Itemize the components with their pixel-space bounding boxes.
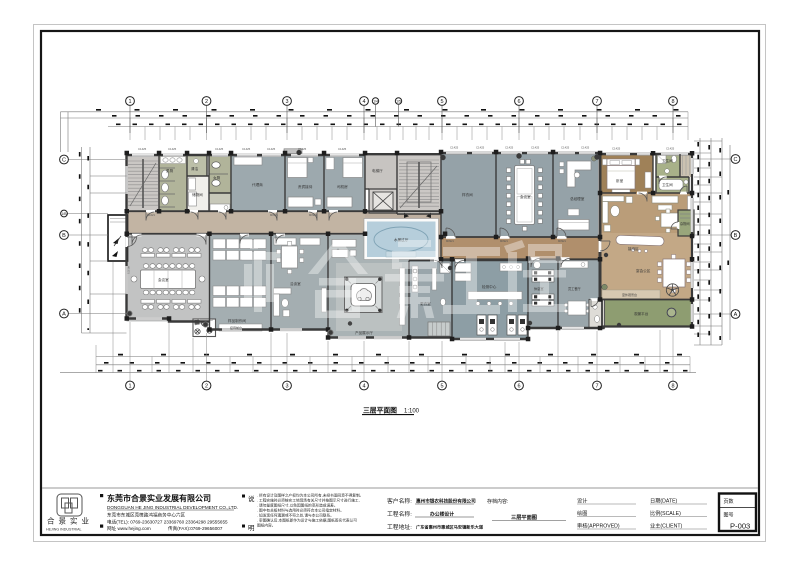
svg-text:客户名称:: 客户名称: — [387, 497, 412, 505]
svg-text:C1425: C1425 — [338, 147, 347, 151]
svg-text:B: B — [62, 233, 66, 239]
svg-text:M0921: M0921 — [309, 213, 317, 217]
svg-text:C1425: C1425 — [450, 146, 459, 150]
svg-text:样衣间: 样衣间 — [462, 192, 473, 197]
svg-text:三层平面图: 三层平面图 — [511, 513, 537, 521]
svg-text:东莞市东城区莞樟路鸿福商务中心六区: 东莞市东城区莞樟路鸿福商务中心六区 — [107, 512, 186, 519]
svg-text:3: 3 — [285, 384, 288, 390]
svg-text:存档内容:: 存档内容: — [487, 498, 508, 505]
svg-text:合景实业: 合景实业 — [47, 516, 93, 526]
svg-text:1/4: 1/4 — [373, 100, 378, 104]
svg-text:1/5: 1/5 — [396, 100, 401, 104]
svg-text:C1425: C1425 — [267, 147, 276, 151]
svg-text:办公楼设计: 办公楼设计 — [430, 511, 454, 518]
svg-text:工程地址:: 工程地址: — [387, 523, 412, 531]
svg-text:7: 7 — [595, 99, 598, 105]
svg-text:1: 1 — [128, 384, 131, 390]
svg-text:设计: 设计 — [577, 497, 587, 505]
svg-text:接待前台: 接待前台 — [230, 325, 242, 330]
svg-text:. 图中有关板材料与选用时必须符合本公司指定材料。: . 图中有关板材料与选用时必须符合本公司指定材料。 — [257, 508, 344, 513]
svg-text:A: A — [62, 312, 66, 318]
svg-text:司机房: 司机房 — [337, 184, 348, 189]
svg-text:业主(CLIENT): 业主(CLIENT) — [650, 522, 683, 530]
svg-text:员工餐厅: 员工餐厅 — [568, 286, 582, 291]
svg-text:明: 明 — [248, 524, 255, 532]
svg-text:4: 4 — [362, 99, 365, 105]
svg-text:5: 5 — [440, 99, 443, 105]
svg-text:产品展示厅: 产品展示厅 — [355, 330, 373, 335]
svg-text:B: B — [734, 233, 738, 239]
svg-text:C: C — [734, 157, 738, 163]
svg-text:卫生间: 卫生间 — [662, 182, 673, 187]
svg-text:M0921: M0921 — [558, 239, 566, 243]
svg-text:6: 6 — [517, 99, 520, 105]
svg-text:卫生间: 卫生间 — [662, 158, 673, 163]
svg-text:绘图: 绘图 — [577, 509, 587, 517]
svg-text:8: 8 — [671, 99, 674, 105]
svg-text:1:100: 1:100 — [404, 409, 420, 415]
svg-text:会议室: 会议室 — [520, 194, 531, 199]
svg-text:储物间: 储物间 — [192, 192, 203, 197]
svg-text:3: 3 — [285, 99, 288, 105]
svg-text:C1425: C1425 — [242, 147, 251, 151]
svg-text:网址 www.hejing.com: 网址 www.hejing.com — [107, 525, 151, 532]
svg-text:杂物间: 杂物间 — [680, 221, 690, 226]
svg-text:A: A — [734, 312, 738, 318]
svg-text:图号: 图号 — [724, 513, 734, 519]
svg-text:C1425: C1425 — [505, 146, 514, 150]
svg-text:清洁: 清洁 — [191, 166, 199, 171]
svg-text:三层平面图: 三层平面图 — [363, 406, 397, 415]
svg-text:电梯厅: 电梯厅 — [372, 168, 383, 173]
svg-text:图纸内容。: 图纸内容。 — [257, 523, 275, 528]
svg-text:洽谈室: 洽谈室 — [290, 281, 301, 286]
svg-text:页数: 页数 — [724, 498, 734, 505]
svg-text:HEJING INDUSTRIAL: HEJING INDUSTRIAL — [46, 528, 82, 532]
svg-text:宴会公区: 宴会公区 — [636, 268, 651, 273]
svg-text:M0921: M0921 — [270, 213, 278, 217]
svg-text:2: 2 — [205, 99, 208, 105]
svg-text:P-003: P-003 — [730, 522, 750, 531]
svg-text:DONGGUAN HE JING INDUSTRIAL DE: DONGGUAN HE JING INDUSTRIAL DEVELOPMENT … — [107, 505, 238, 510]
svg-text:C1425: C1425 — [666, 147, 675, 151]
svg-text:代理商: 代理商 — [252, 182, 263, 187]
svg-text:C1425: C1425 — [476, 146, 485, 150]
svg-text:C1425: C1425 — [581, 146, 590, 150]
svg-text:C1425: C1425 — [138, 147, 147, 151]
svg-text:审核(APPROVED): 审核(APPROVED) — [577, 522, 620, 530]
svg-text:. 审图确认后,本图纸即作为设计与施工依据,图纸签名代表认可: . 审图确认后,本图纸即作为设计与施工依据,图纸签名代表认可 — [257, 518, 357, 523]
svg-text:接待区: 接待区 — [628, 246, 639, 251]
svg-text:1: 1 — [128, 99, 131, 105]
svg-text:电话(TEL): 0769-23630727 2336976: 电话(TEL): 0769-23630727 23369760 23364298… — [107, 519, 228, 526]
svg-text:惠州市银农科技股份有限公司: 惠州市银农科技股份有限公司 — [416, 498, 476, 505]
svg-text:室外观景台: 室外观景台 — [622, 292, 637, 297]
svg-text:传真(FAX):0769-29656007: 传真(FAX):0769-29656007 — [168, 525, 223, 532]
svg-text:样品制作间: 样品制作间 — [228, 318, 246, 323]
svg-text:6: 6 — [517, 384, 520, 390]
svg-text:. 如发现任何遗漏或不符之处,请与本公司联系。: . 如发现任何遗漏或不符之处,请与本公司联系。 — [257, 513, 334, 518]
svg-text:2: 2 — [205, 384, 208, 390]
svg-text:C1425: C1425 — [215, 147, 224, 151]
svg-text:观景平台: 观景平台 — [634, 311, 649, 316]
svg-text:M1021: M1021 — [147, 213, 155, 217]
svg-text:东莞市合景实业发展有限公司: 东莞市合景实业发展有限公司 — [107, 493, 211, 503]
svg-text:C1425: C1425 — [612, 147, 621, 151]
svg-text:C1425: C1425 — [561, 146, 570, 150]
svg-text:检测中心: 检测中心 — [482, 284, 497, 289]
svg-text:会议室: 会议室 — [158, 277, 169, 282]
svg-text:1/B: 1/B — [61, 212, 67, 216]
svg-text:7: 7 — [595, 384, 598, 390]
svg-text:M0921: M0921 — [500, 239, 508, 243]
svg-text:. 工程实施时必须核实工地现场有关尺寸并按图示尺寸进行施工,: . 工程实施时必须核实工地现场有关尺寸并按图示尺寸进行施工, — [257, 498, 360, 503]
svg-text:工程名称:: 工程名称: — [387, 510, 412, 518]
svg-text:日期(DATE): 日期(DATE) — [650, 498, 678, 505]
svg-text:女厕: 女厕 — [213, 175, 221, 180]
svg-text:总经理室: 总经理室 — [570, 196, 585, 201]
svg-text:C1425: C1425 — [298, 147, 307, 151]
svg-text:4: 4 — [362, 384, 365, 390]
svg-text:男厕: 男厕 — [166, 168, 174, 173]
svg-text:比例(SCALE): 比例(SCALE) — [650, 509, 681, 517]
svg-text:C1425: C1425 — [168, 147, 177, 151]
svg-text:贵宾接待: 贵宾接待 — [298, 184, 313, 189]
svg-text:. 请勿量度图纸尺寸,以免因图纸的变形造成误差。: . 请勿量度图纸尺寸,以免因图纸的变形造成误差。 — [257, 503, 338, 508]
svg-text:说: 说 — [248, 494, 255, 503]
svg-text:M0921: M0921 — [446, 239, 454, 243]
svg-text:5: 5 — [440, 384, 443, 390]
svg-text:. 所有设计及图样之产权均为本公司所有,未经书面同意不得复制: . 所有设计及图样之产权均为本公司所有,未经书面同意不得复制。 — [257, 493, 363, 498]
svg-text:C1425: C1425 — [531, 146, 540, 150]
svg-text:广东省惠州市惠城区马安镇新乐大道: 广东省惠州市惠城区马安镇新乐大道 — [416, 524, 484, 531]
svg-text:卧室: 卧室 — [616, 178, 624, 183]
svg-text:8: 8 — [671, 384, 674, 390]
svg-text:C: C — [62, 158, 66, 164]
